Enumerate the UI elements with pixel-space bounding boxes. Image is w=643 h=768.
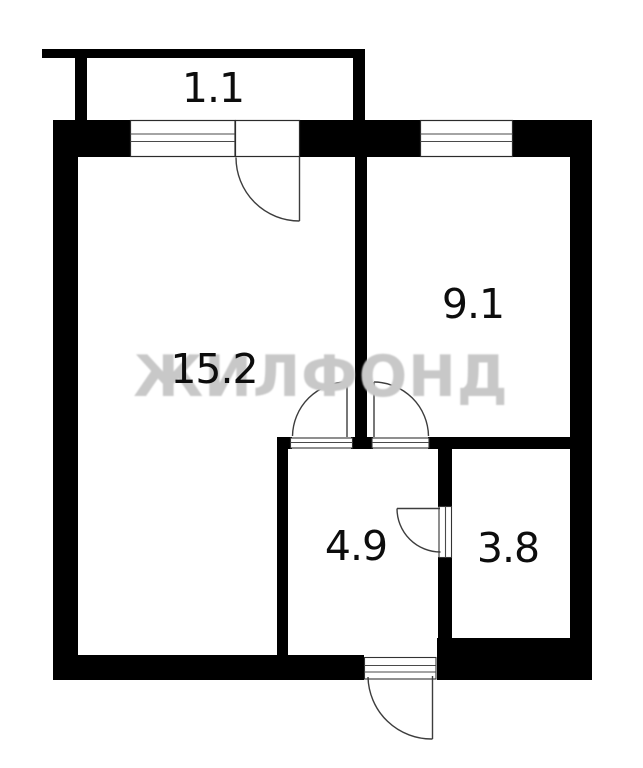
wall-hall-top-left-stub	[277, 437, 292, 449]
entrance-door	[365, 658, 437, 740]
wall-right	[570, 120, 592, 680]
wall-balcony-top	[42, 49, 363, 58]
balcony-door-opening	[236, 121, 300, 157]
entrance-door-swing-arc	[368, 677, 433, 739]
wall-bathroom-left-upper	[438, 449, 452, 507]
wall-hall-left	[277, 449, 288, 655]
room-label-hall: 4.9	[325, 522, 387, 570]
wall-top-middle-segment	[299, 120, 420, 157]
floor-plan: ЖИЛФОНД	[0, 0, 643, 768]
wall-balcony-right	[353, 49, 365, 120]
room-label-living-room: 15.2	[170, 345, 257, 393]
wall-hall-top-center-stub	[351, 437, 373, 449]
wall-hall-top-right-segment	[428, 437, 573, 449]
entrance-door-sill	[365, 658, 437, 680]
wall-balcony-left	[75, 49, 87, 120]
door-bathroom	[397, 507, 452, 558]
wall-bottom-right-segment	[437, 638, 592, 680]
window-living-room	[131, 121, 236, 157]
window-bedroom	[421, 121, 513, 157]
room-label-balcony: 1.1	[182, 64, 244, 112]
balcony-door-swing-arc	[236, 158, 300, 222]
balcony-door	[236, 121, 300, 222]
wall-bathroom-left-lower	[438, 557, 452, 653]
room-label-bedroom: 9.1	[442, 280, 504, 328]
wall-left	[53, 120, 78, 680]
room-label-bathroom: 3.8	[477, 524, 539, 572]
door-bathroom-swing-arc	[397, 509, 441, 553]
wall-bottom-left-segment	[53, 655, 364, 680]
